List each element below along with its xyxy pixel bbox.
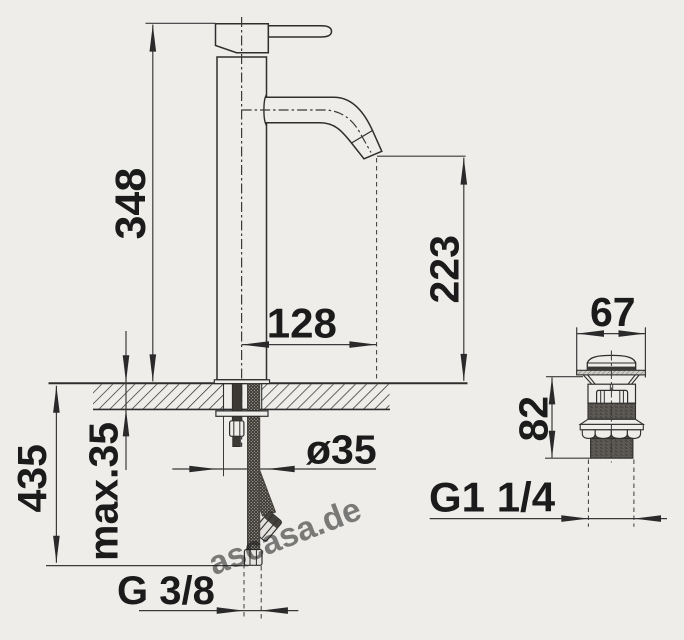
- svg-text:82: 82: [511, 396, 557, 442]
- svg-text:G 3/8: G 3/8: [117, 569, 215, 613]
- svg-text:223: 223: [421, 235, 467, 303]
- svg-text:max.35: max.35: [81, 422, 127, 561]
- svg-text:435: 435: [9, 444, 55, 512]
- svg-text:G1 1/4: G1 1/4: [429, 474, 556, 521]
- svg-text:67: 67: [590, 289, 636, 335]
- svg-text:ø35: ø35: [306, 427, 377, 473]
- svg-text:128: 128: [267, 300, 337, 347]
- svg-text:348: 348: [107, 168, 155, 240]
